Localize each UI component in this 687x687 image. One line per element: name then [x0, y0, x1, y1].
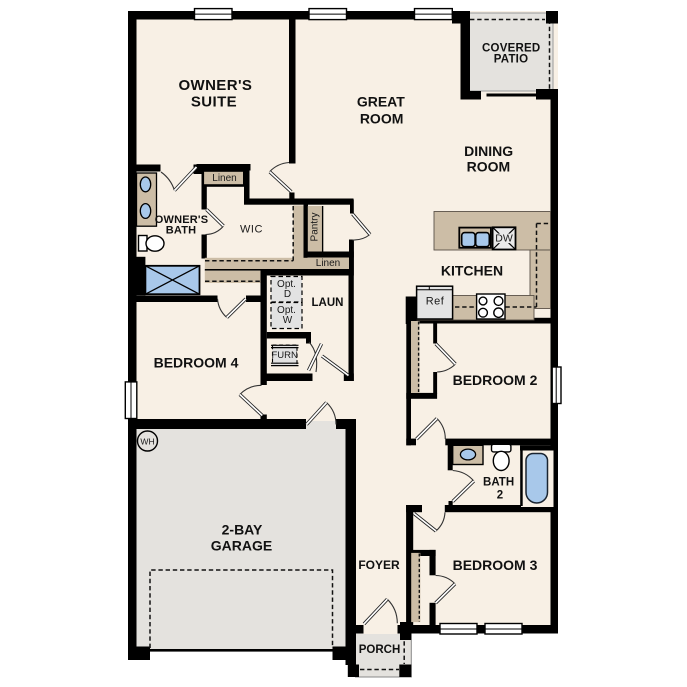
svg-text:Linen: Linen	[316, 258, 340, 269]
svg-text:BEDROOM 3: BEDROOM 3	[453, 557, 538, 573]
svg-text:Ref: Ref	[426, 296, 445, 308]
svg-text:ROOM: ROOM	[360, 110, 404, 126]
svg-text:Linen: Linen	[212, 173, 236, 184]
svg-text:SUITE: SUITE	[191, 93, 237, 110]
svg-text:ROOM: ROOM	[467, 159, 511, 175]
svg-text:LAUN: LAUN	[312, 297, 344, 309]
svg-text:FOYER: FOYER	[358, 558, 400, 572]
svg-text:WH: WH	[140, 437, 154, 447]
svg-text:GREAT: GREAT	[357, 93, 405, 109]
svg-text:2-BAY: 2-BAY	[222, 522, 263, 538]
svg-text:FURN: FURN	[272, 350, 299, 361]
svg-text:2: 2	[497, 490, 503, 502]
svg-text:BEDROOM 4: BEDROOM 4	[154, 355, 239, 371]
svg-text:DW: DW	[495, 233, 513, 245]
svg-text:PATIO: PATIO	[494, 53, 528, 65]
svg-text:GARAGE: GARAGE	[211, 538, 272, 554]
svg-text:BEDROOM 2: BEDROOM 2	[453, 372, 538, 388]
svg-text:DINING: DINING	[464, 143, 513, 159]
svg-text:OWNER'S: OWNER'S	[178, 77, 252, 94]
svg-text:WIC: WIC	[240, 224, 263, 236]
svg-text:PORCH: PORCH	[359, 644, 401, 656]
svg-text:W: W	[283, 315, 293, 326]
svg-text:KITCHEN: KITCHEN	[441, 263, 503, 279]
svg-text:BATH: BATH	[166, 225, 197, 237]
svg-text:Pantry: Pantry	[310, 213, 321, 242]
svg-text:D: D	[284, 289, 291, 300]
svg-text:BATH: BATH	[483, 477, 514, 489]
